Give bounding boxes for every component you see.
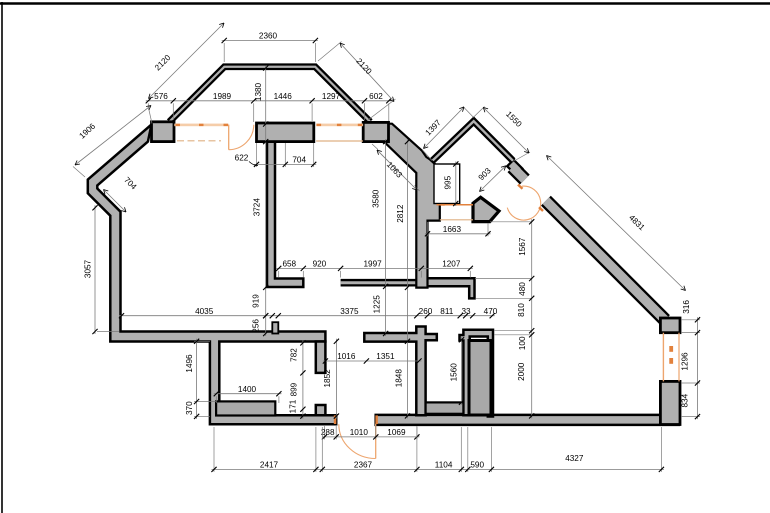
svg-text:704: 704 xyxy=(292,156,306,165)
svg-text:316: 316 xyxy=(682,300,691,314)
svg-text:370: 370 xyxy=(185,401,194,415)
svg-text:288: 288 xyxy=(321,428,335,437)
svg-text:1989: 1989 xyxy=(213,92,232,101)
svg-text:1496: 1496 xyxy=(185,354,194,373)
svg-text:480: 480 xyxy=(518,282,527,296)
svg-text:2000: 2000 xyxy=(517,362,526,381)
svg-text:2417: 2417 xyxy=(260,461,279,470)
svg-text:33: 33 xyxy=(461,307,471,316)
svg-text:576: 576 xyxy=(154,92,168,101)
svg-text:1380: 1380 xyxy=(254,82,263,101)
svg-text:1560: 1560 xyxy=(450,363,459,382)
svg-text:1010: 1010 xyxy=(350,428,369,437)
svg-text:834: 834 xyxy=(681,393,690,407)
svg-text:1663: 1663 xyxy=(443,225,462,234)
svg-text:171: 171 xyxy=(289,399,298,413)
svg-text:920: 920 xyxy=(313,260,327,269)
svg-text:3724: 3724 xyxy=(252,198,261,217)
svg-text:1207: 1207 xyxy=(442,260,461,269)
svg-text:1852: 1852 xyxy=(323,369,332,388)
svg-text:2812: 2812 xyxy=(396,204,405,223)
svg-text:658: 658 xyxy=(282,260,296,269)
svg-text:622: 622 xyxy=(235,153,249,162)
svg-text:1567: 1567 xyxy=(518,237,527,256)
svg-text:1104: 1104 xyxy=(435,461,453,470)
svg-text:995: 995 xyxy=(444,175,453,189)
svg-text:1297: 1297 xyxy=(322,92,341,101)
svg-text:1225: 1225 xyxy=(372,295,381,314)
svg-text:2360: 2360 xyxy=(259,32,278,41)
svg-text:919: 919 xyxy=(251,294,260,308)
svg-text:1446: 1446 xyxy=(274,92,293,101)
svg-text:1351: 1351 xyxy=(376,352,395,361)
svg-text:782: 782 xyxy=(289,348,298,362)
svg-text:811: 811 xyxy=(440,307,453,316)
svg-text:256: 256 xyxy=(251,319,260,333)
svg-text:3375: 3375 xyxy=(340,307,359,316)
svg-text:1848: 1848 xyxy=(395,369,404,388)
svg-text:1016: 1016 xyxy=(337,352,356,361)
svg-text:260: 260 xyxy=(419,307,433,316)
svg-text:3057: 3057 xyxy=(84,259,93,278)
svg-text:470: 470 xyxy=(484,307,498,316)
svg-text:4327: 4327 xyxy=(565,454,584,463)
svg-text:1997: 1997 xyxy=(363,260,382,269)
svg-text:810: 810 xyxy=(517,303,526,317)
svg-text:1069: 1069 xyxy=(387,428,406,437)
svg-text:3580: 3580 xyxy=(371,189,380,208)
svg-text:1296: 1296 xyxy=(681,352,690,371)
svg-text:4035: 4035 xyxy=(195,307,214,316)
svg-text:590: 590 xyxy=(470,461,484,470)
svg-text:100: 100 xyxy=(518,336,527,350)
svg-text:1400: 1400 xyxy=(238,385,257,394)
svg-text:899: 899 xyxy=(289,382,298,396)
svg-text:602: 602 xyxy=(369,92,383,101)
svg-text:2367: 2367 xyxy=(354,461,373,470)
